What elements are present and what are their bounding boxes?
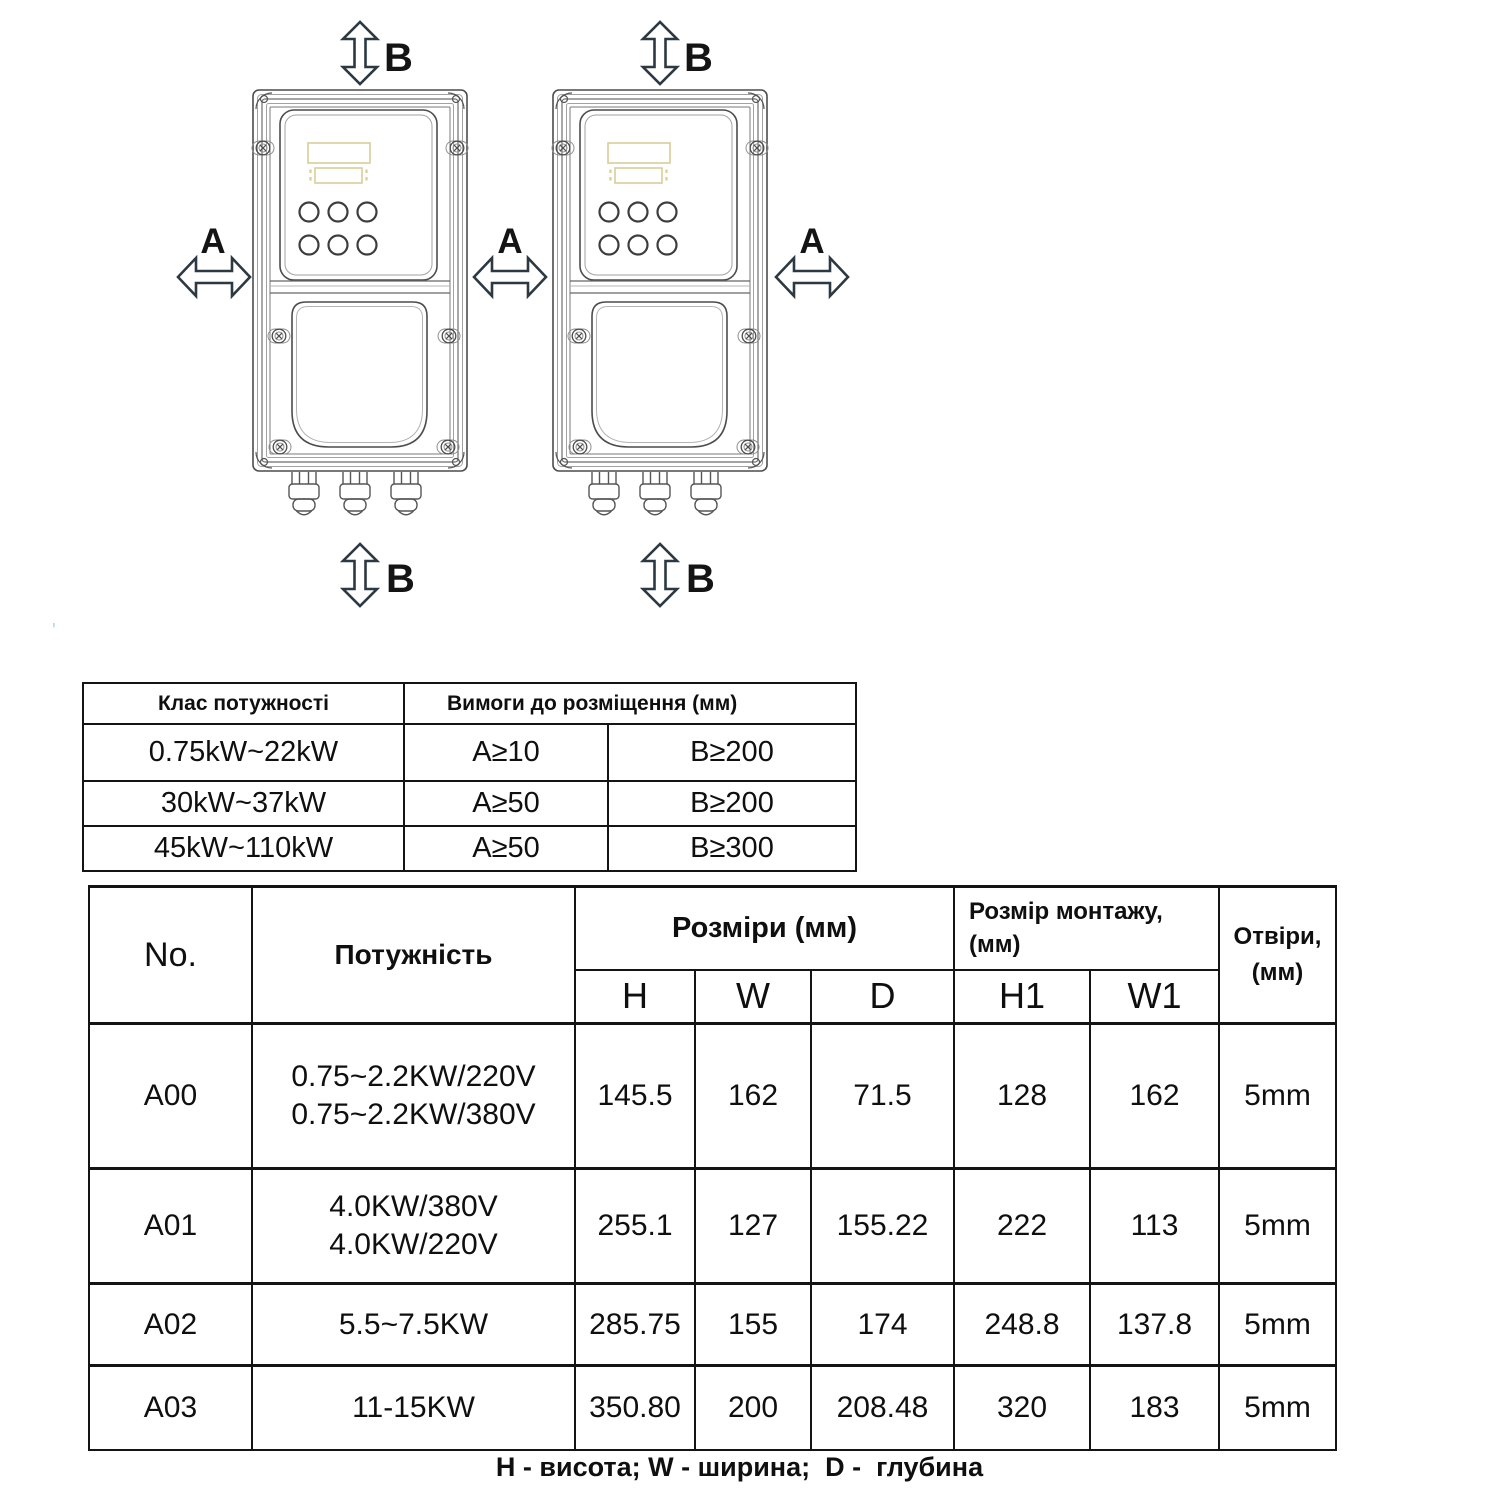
w1-cell: 113 [1090, 1169, 1219, 1284]
h-cell: 145.5 [575, 1024, 695, 1169]
clearance-a-cell: A≥50 [404, 781, 608, 826]
header-holes-line1: Отвіри, [1220, 919, 1335, 955]
d-cell: 208.48 [811, 1366, 954, 1450]
power-line2: 4.0KW/220V [253, 1226, 574, 1264]
header-dimensions: Розміри (мм) [575, 887, 954, 970]
h1-cell: 248.8 [954, 1284, 1090, 1366]
header-w1: W1 [1090, 970, 1219, 1024]
holes-cell: 5mm [1219, 1024, 1336, 1169]
header-d: D [811, 970, 954, 1024]
power-line1: 4.0KW/380V [253, 1188, 574, 1226]
placement-table: Клас потужності Вимоги до розміщення (мм… [82, 682, 857, 872]
placement-header-power-class: Клас потужності [83, 683, 404, 724]
dimensions-row-a03: A03 11-15KW 350.80 200 208.48 320 183 5m… [89, 1366, 1336, 1450]
header-h: H [575, 970, 695, 1024]
no-cell: A01 [89, 1169, 252, 1284]
d-cell: 155.22 [811, 1169, 954, 1284]
w-cell: 162 [695, 1024, 811, 1169]
power-line1: 0.75~2.2KW/220V [253, 1058, 574, 1096]
w-cell: 200 [695, 1366, 811, 1450]
h-cell: 285.75 [575, 1284, 695, 1366]
label-b-bottom-left: B [386, 557, 415, 601]
power-cell: 5.5~7.5KW [252, 1284, 575, 1366]
clearance-b-cell: B≥200 [608, 724, 856, 781]
dimensions-row-a02: A02 5.5~7.5KW 285.75 155 174 248.8 137.8… [89, 1284, 1336, 1366]
h1-cell: 222 [954, 1169, 1090, 1284]
power-class-cell: 30kW~37kW [83, 781, 404, 826]
power-line1: 5.5~7.5KW [253, 1306, 574, 1344]
placement-row: 45kW~110kW A≥50 B≥300 [83, 826, 856, 871]
header-w: W [695, 970, 811, 1024]
placement-header-requirements: Вимоги до розміщення (мм) [404, 683, 856, 724]
d-cell: 174 [811, 1284, 954, 1366]
header-no: No. [89, 887, 252, 1024]
label-b-bottom-right: B [686, 557, 715, 601]
label-b-top-left: B [384, 36, 413, 80]
power-class-cell: 0.75kW~22kW [83, 724, 404, 781]
device-drawing-right [552, 90, 768, 515]
arrow-b-top-left [343, 22, 377, 84]
clearance-b-cell: B≥300 [608, 826, 856, 871]
no-cell: A03 [89, 1366, 252, 1450]
clearance-diagram: B B A A A B B [0, 0, 1500, 660]
power-cell: 4.0KW/380V 4.0KW/220V [252, 1169, 575, 1284]
header-mounting-line2: (мм) [969, 928, 1218, 962]
h-cell: 350.80 [575, 1366, 695, 1450]
arrow-b-top-right [643, 22, 677, 84]
power-line1: 11-15KW [253, 1389, 574, 1427]
arrow-a-left [178, 258, 250, 296]
holes-cell: 5mm [1219, 1366, 1336, 1450]
w-cell: 155 [695, 1284, 811, 1366]
label-b-top-right: B [684, 36, 713, 80]
placement-row: 30kW~37kW A≥50 B≥200 [83, 781, 856, 826]
device-drawing-left [252, 90, 468, 515]
dimensions-row-a00: A00 0.75~2.2KW/220V 0.75~2.2KW/380V 145.… [89, 1024, 1336, 1169]
header-h1: H1 [954, 970, 1090, 1024]
h-cell: 255.1 [575, 1169, 695, 1284]
clearance-b-cell: B≥200 [608, 781, 856, 826]
header-mounting: Розмір монтажу, (мм) [954, 887, 1219, 970]
power-class-cell: 45kW~110kW [83, 826, 404, 871]
placement-row: 0.75kW~22kW A≥10 B≥200 [83, 724, 856, 781]
header-holes-line2: (мм) [1220, 955, 1335, 991]
dimensions-header-row-1: No. Потужність Розміри (мм) Розмір монта… [89, 887, 1336, 970]
no-cell: A02 [89, 1284, 252, 1366]
header-holes: Отвіри, (мм) [1219, 887, 1336, 1024]
d-cell: 71.5 [811, 1024, 954, 1169]
arrow-a-middle [474, 258, 546, 296]
arrow-b-bottom-right [643, 544, 677, 606]
w1-cell: 183 [1090, 1366, 1219, 1450]
h1-cell: 128 [954, 1024, 1090, 1169]
power-cell: 11-15KW [252, 1366, 575, 1450]
dimensions-row-a01: A01 4.0KW/380V 4.0KW/220V 255.1 127 155.… [89, 1169, 1336, 1284]
h1-cell: 320 [954, 1366, 1090, 1450]
clearance-a-cell: A≥10 [404, 724, 608, 781]
power-cell: 0.75~2.2KW/220V 0.75~2.2KW/380V [252, 1024, 575, 1169]
w1-cell: 137.8 [1090, 1284, 1219, 1366]
label-a-left: A [200, 222, 225, 261]
stray-mark: ' [52, 620, 56, 643]
arrow-b-bottom-left [343, 544, 377, 606]
legend-note: H - висота; W - ширина; D - глубина [116, 1452, 1363, 1483]
label-a-middle: A [497, 222, 522, 261]
power-line2: 0.75~2.2KW/380V [253, 1096, 574, 1134]
holes-cell: 5mm [1219, 1284, 1336, 1366]
no-cell: A00 [89, 1024, 252, 1169]
header-power: Потужність [252, 887, 575, 1024]
holes-cell: 5mm [1219, 1169, 1336, 1284]
header-mounting-line1: Розмір монтажу, [969, 895, 1218, 929]
dimensions-table: No. Потужність Розміри (мм) Розмір монта… [88, 885, 1337, 1451]
w-cell: 127 [695, 1169, 811, 1284]
clearance-a-cell: A≥50 [404, 826, 608, 871]
arrow-a-right [776, 258, 848, 296]
w1-cell: 162 [1090, 1024, 1219, 1169]
label-a-right: A [799, 222, 824, 261]
placement-header-row: Клас потужності Вимоги до розміщення (мм… [83, 683, 856, 724]
